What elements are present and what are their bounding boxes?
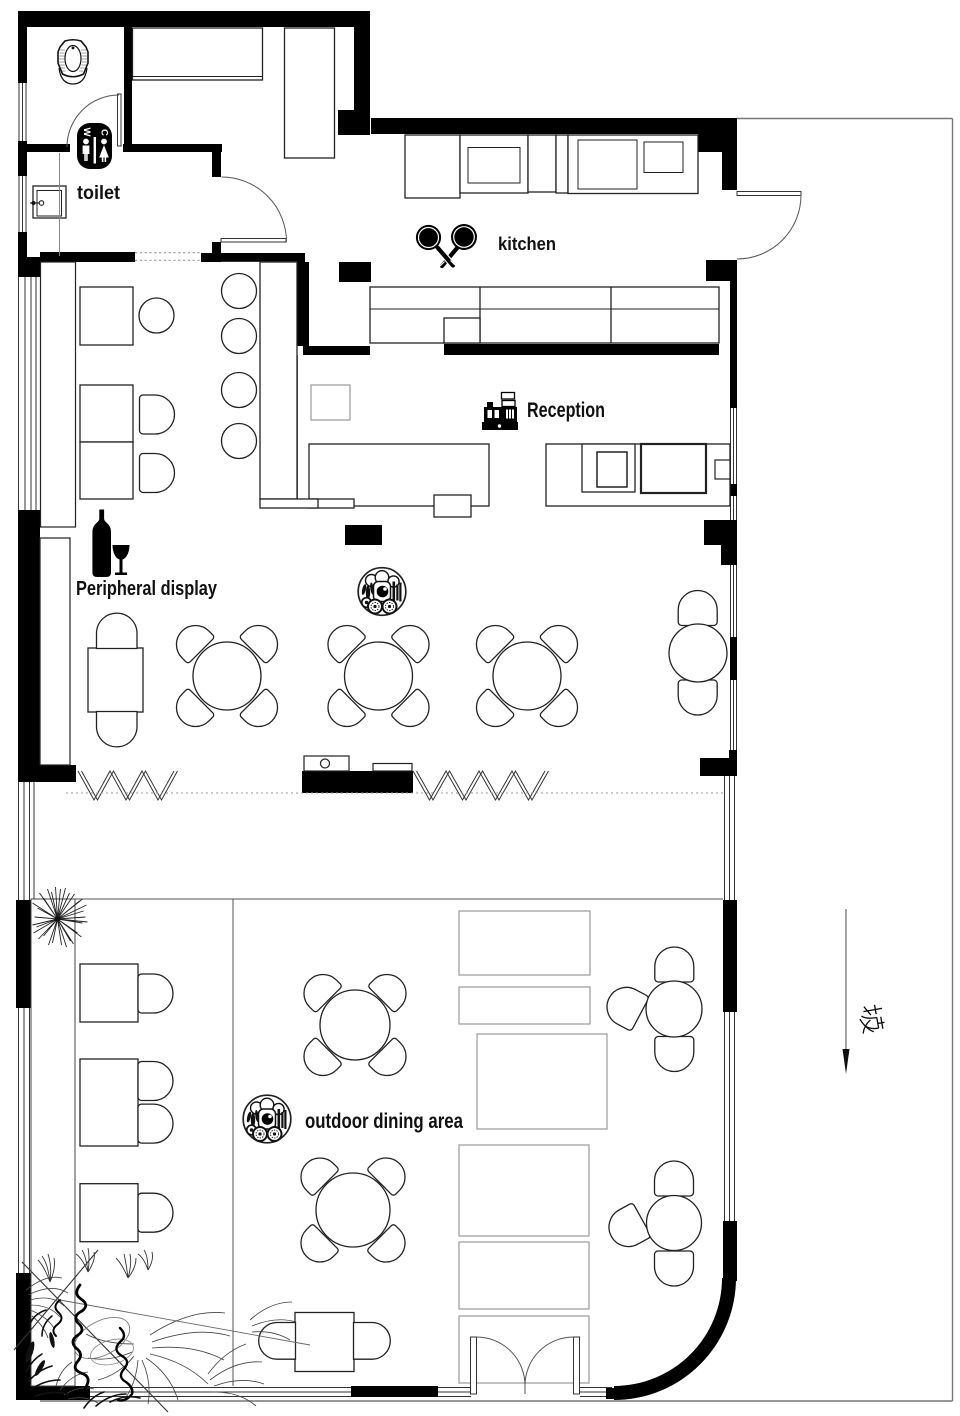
svg-text:outdoor dining area: outdoor dining area [305, 1110, 463, 1133]
svg-text:Reception: Reception [527, 399, 605, 422]
svg-text:Peripheral display: Peripheral display [76, 578, 218, 600]
svg-text:kitchen: kitchen [498, 233, 556, 254]
svg-text:W: W [81, 128, 92, 137]
svg-text:C: C [99, 129, 110, 136]
svg-text:toilet: toilet [77, 182, 120, 204]
